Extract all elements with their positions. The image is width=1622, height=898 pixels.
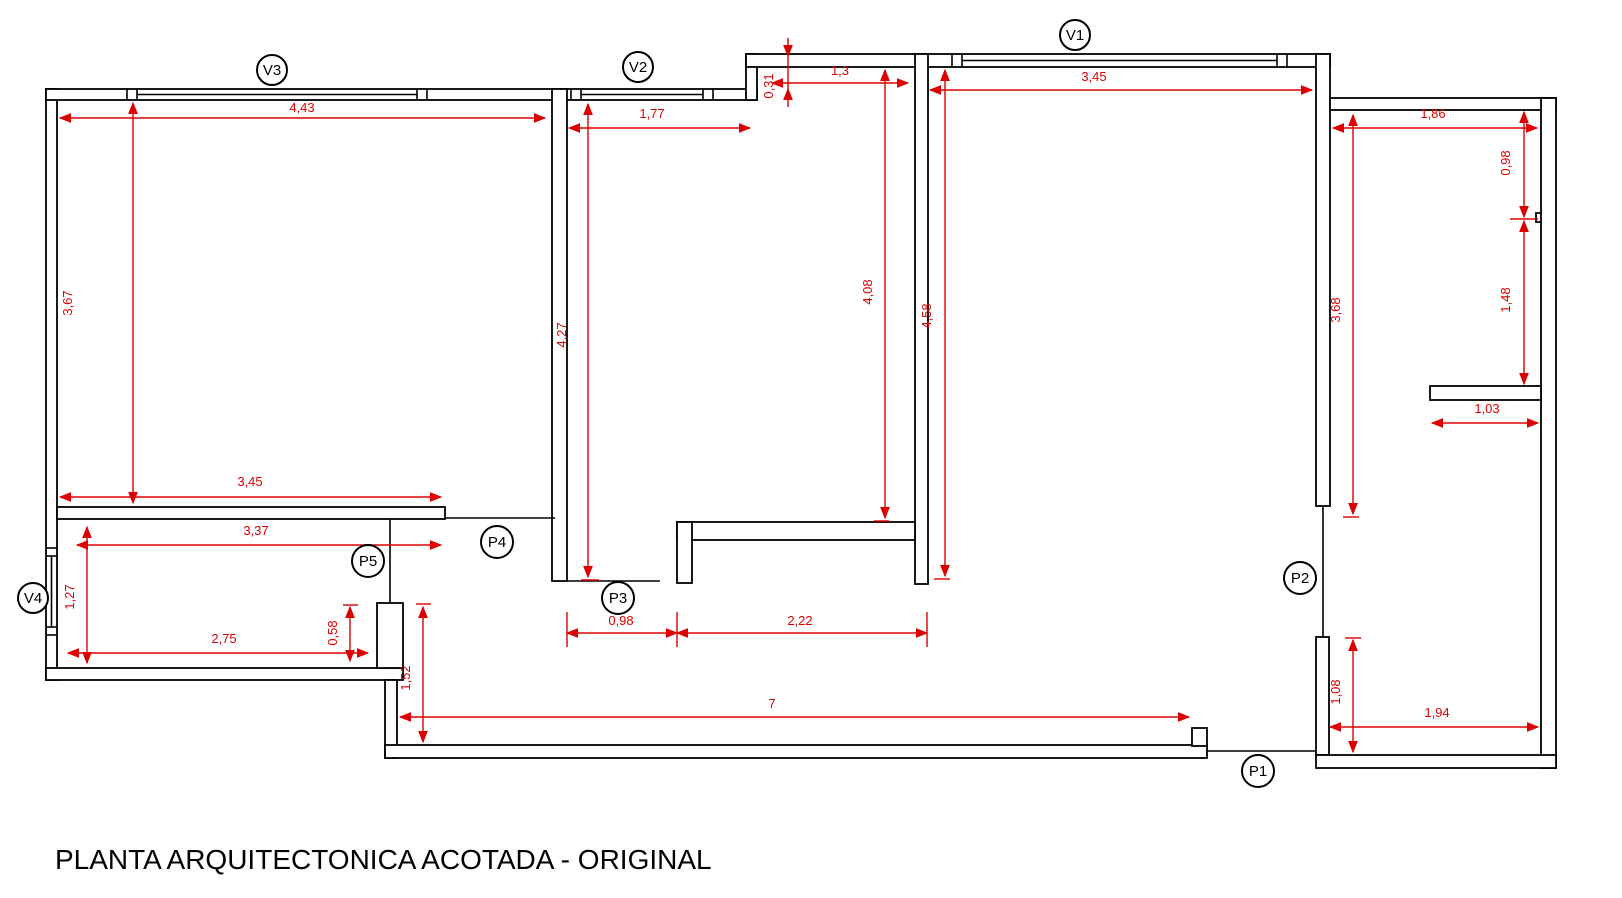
door-label-p3-text: P3 (609, 590, 627, 607)
window-label-v3: V3 (257, 55, 287, 85)
dim-d-right-upper: 0,98 (1498, 150, 1513, 175)
wall-e-bottom (46, 668, 403, 680)
dim-c-height: 4,58 (919, 303, 934, 328)
door-label-p5-text: P5 (359, 553, 377, 570)
dim-b-height: 4,27 (554, 322, 569, 347)
dim-e-bottom-width: 2,75 (211, 631, 236, 646)
dim-corridor-width: 7 (768, 696, 775, 711)
door-label-p3: P3 (602, 582, 634, 614)
dim-e-top-width: 3,37 (243, 523, 268, 538)
wall-b-partial-horizontal (677, 522, 915, 540)
wall-stub-right (1192, 728, 1207, 746)
wall-d-shelf (1430, 386, 1541, 400)
dim-corridor-height: 1,52 (398, 665, 413, 690)
dim-b-inner-height: 4,08 (860, 279, 875, 304)
dim-b-step: 0,31 (761, 73, 776, 98)
floor-plan-sheet: 4,43 3,67 3,45 1,77 4,27 0,31 1,3 4,08 3… (0, 0, 1622, 898)
window-label-v4: V4 (18, 583, 48, 613)
dim-a-bottom-width: 3,45 (237, 474, 262, 489)
dim-c-top-width: 3,45 (1081, 69, 1106, 84)
dim-d-lower-height: 1,08 (1328, 679, 1343, 704)
dim-e-stub: 0,58 (325, 620, 340, 645)
dim-a-width: 4,43 (289, 100, 314, 115)
window-label-v1-text: V1 (1066, 27, 1084, 44)
wall-d-right (1541, 98, 1556, 768)
window-label-v4-text: V4 (24, 590, 42, 607)
wall-stub-left (377, 603, 403, 668)
sheet-title: PLANTA ARQUITECTONICA ACOTADA - ORIGINAL (55, 844, 712, 875)
dim-a-height: 3,67 (60, 290, 75, 315)
dim-p3-left: 0,98 (608, 613, 633, 628)
door-label-p2-text: P2 (1291, 570, 1309, 587)
door-label-p4: P4 (481, 526, 513, 558)
door-label-p2: P2 (1284, 562, 1316, 594)
dim-d-shelf-width: 1,03 (1474, 401, 1499, 416)
door-label-p1-text: P1 (1249, 763, 1267, 780)
dim-d-left-height: 3,68 (1328, 297, 1343, 322)
dim-d-top-width: 1,86 (1420, 106, 1445, 121)
floor-plan-canvas: 4,43 3,67 3,45 1,77 4,27 0,31 1,3 4,08 3… (0, 0, 1622, 898)
doors (390, 506, 1323, 751)
dim-b-nook-width: 1,3 (831, 63, 849, 78)
dim-e-height: 1,27 (62, 584, 77, 609)
wall-d-bottom (1316, 755, 1556, 768)
dim-d-bottom-width: 1,94 (1424, 705, 1449, 720)
windows (46, 54, 1287, 635)
door-label-p5: P5 (352, 545, 384, 577)
dim-p3-right: 2,22 (787, 613, 812, 628)
wall-a-bottom (57, 507, 445, 519)
wall-corridor-bottom (385, 745, 1207, 758)
window-label-v1: V1 (1060, 20, 1090, 50)
window-label-v2: V2 (623, 52, 653, 82)
wall-c-right-upper (1316, 54, 1330, 506)
wall-b-partial-vertical (677, 522, 692, 583)
walls (46, 54, 1556, 768)
dim-b-top-width: 1,77 (639, 106, 664, 121)
window-label-v3-text: V3 (263, 62, 281, 79)
door-label-p1: P1 (1242, 755, 1274, 787)
window-label-v2-text: V2 (629, 59, 647, 76)
door-label-p4-text: P4 (488, 534, 506, 551)
dim-d-right-lower: 1,48 (1498, 287, 1513, 312)
